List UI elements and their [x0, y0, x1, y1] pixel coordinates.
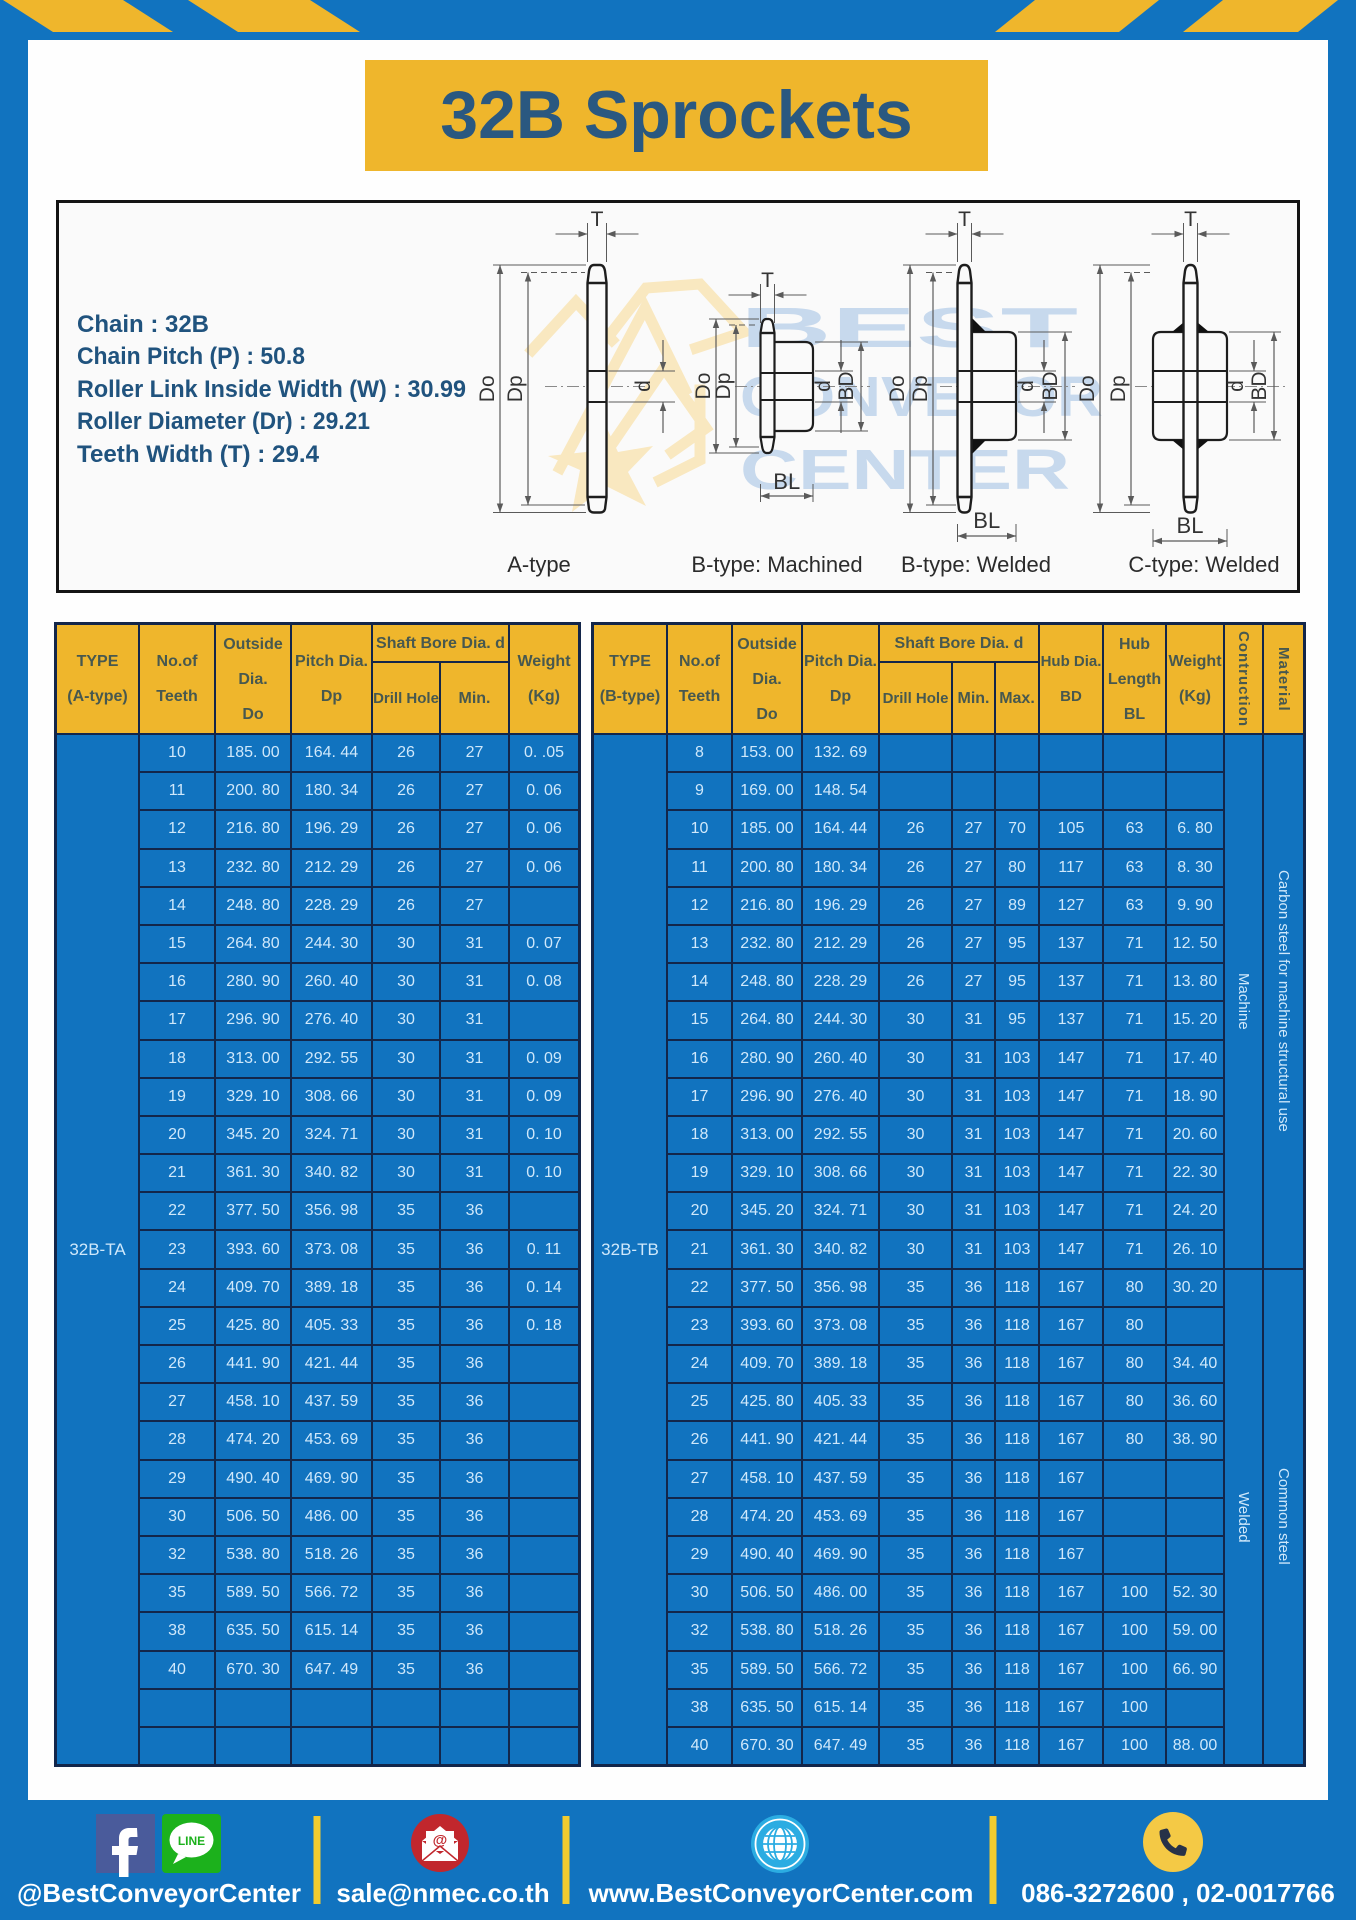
svg-text:Do: Do — [1076, 375, 1099, 402]
svg-text:A-type: A-type — [507, 552, 571, 577]
svg-text:LINE: LINE — [178, 1834, 205, 1848]
svg-text:B-type: Machined: B-type: Machined — [691, 552, 862, 577]
svg-text:BD: BD — [835, 371, 858, 400]
svg-text:BL: BL — [773, 469, 800, 494]
svg-text:T: T — [761, 269, 774, 292]
svg-text:d: d — [1015, 380, 1038, 392]
svg-text:Chain Pitch (P) : 50.8: Chain Pitch (P) : 50.8 — [77, 343, 305, 370]
svg-text:T: T — [591, 208, 604, 231]
svg-text:d: d — [812, 380, 835, 392]
svg-text:Roller Link Inside Width (W) :: Roller Link Inside Width (W) : 30.99 — [77, 376, 466, 403]
svg-text:Dp: Dp — [909, 375, 932, 402]
svg-text:Teeth Width (T) : 29.4: Teeth Width (T) : 29.4 — [77, 441, 320, 468]
svg-text:Do: Do — [886, 375, 909, 402]
svg-text:Dp: Dp — [1107, 375, 1130, 402]
svg-text:Chain : 32B: Chain : 32B — [77, 311, 209, 338]
svg-text:C-type: Welded: C-type: Welded — [1128, 552, 1279, 577]
svg-text:BL: BL — [973, 508, 1000, 533]
svg-text:B-type: Welded: B-type: Welded — [901, 552, 1051, 577]
svg-text:BL: BL — [1177, 513, 1204, 538]
svg-text:T: T — [958, 208, 971, 231]
svg-text:Dp: Dp — [712, 373, 735, 400]
svg-text:Dp: Dp — [504, 375, 527, 402]
svg-text:BD: BD — [1248, 371, 1271, 400]
svg-text:d: d — [1225, 380, 1248, 392]
svg-text:d: d — [632, 380, 655, 392]
svg-text:T: T — [1184, 208, 1197, 231]
svg-text:Roller Diameter (Dr) : 29.21: Roller Diameter (Dr) : 29.21 — [77, 408, 370, 435]
svg-text:Do: Do — [476, 375, 499, 402]
svg-text:BD: BD — [1039, 371, 1062, 400]
